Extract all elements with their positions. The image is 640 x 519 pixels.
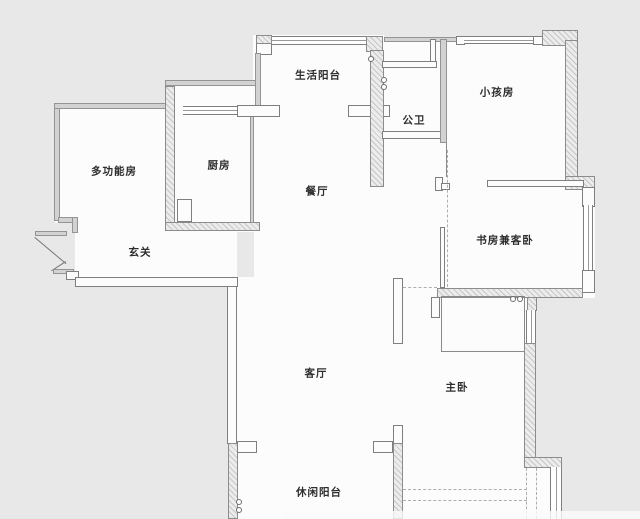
- dashed-line-master-door: [403, 287, 437, 288]
- wall-central-hatched: [370, 50, 384, 187]
- window-life-balcony-top: [271, 36, 367, 45]
- pier-life-balcony-corner-left: [256, 35, 272, 44]
- room-label-public-bath: 公卫: [403, 113, 426, 128]
- wall-study-west: [440, 227, 445, 288]
- wall-kidsroom-south: [487, 180, 584, 187]
- wardrobe-master-bedroom: [441, 296, 525, 352]
- room-label-living: 客厅: [305, 366, 328, 381]
- room-label-entry: 玄关: [129, 245, 152, 260]
- window-kitchen-north: [183, 106, 237, 115]
- window-life-balcony-west: [255, 53, 261, 106]
- wall-living-master-partition-upper: [393, 278, 403, 344]
- room-label-kids-room: 小孩房: [480, 85, 515, 100]
- entry-door-swing-line-1: [34, 237, 66, 264]
- dashed-line-master-south-1: [403, 489, 527, 490]
- pipe-symbol-master-1: [510, 296, 516, 302]
- kitchen-door-leaf: [177, 199, 192, 222]
- drain-symbol-balcony-top: [368, 56, 374, 62]
- wall-bath-top: [382, 61, 437, 68]
- room-label-life-balcony: 生活阳台: [295, 68, 341, 83]
- wall-multifunction-top: [54, 103, 167, 109]
- window-kidsroom-top: [464, 36, 534, 44]
- dashed-line-corridor: [447, 150, 448, 287]
- wall-kitchen-south: [165, 222, 260, 231]
- wall-entry-south: [75, 277, 238, 287]
- wall-leisure-balcony-east: [393, 443, 403, 519]
- floor-leisure-balcony: [228, 443, 403, 519]
- drain-symbol-leisure-2: [236, 507, 242, 513]
- window-study-east: [583, 205, 593, 271]
- wall-kitchen-west: [165, 86, 175, 230]
- entry-door-jamb-top: [35, 231, 67, 236]
- pier-study-east-bottom: [582, 270, 595, 293]
- drain-symbol-leisure-1: [236, 499, 242, 505]
- wall-master-east-stub: [527, 297, 537, 311]
- room-label-master-bedroom: 主卧: [446, 380, 469, 395]
- dashed-line-master-south-2: [403, 500, 527, 501]
- floor-plan: 生活阳台 公卫 小孩房 多功能房 厨房 餐厅 玄关 书房兼客卧 客厅 主卧 休闲…: [0, 0, 640, 519]
- pipe-symbol-bath-2: [381, 84, 387, 90]
- sill-life-balcony-left: [237, 105, 280, 117]
- pier-balcony-right: [373, 441, 393, 453]
- room-label-kitchen: 厨房: [208, 158, 231, 173]
- wall-living-west: [227, 286, 237, 444]
- floor-living: [227, 277, 403, 443]
- wall-bath-bottom: [382, 131, 445, 139]
- wall-stub-master-door: [431, 297, 440, 318]
- window-master-east: [526, 310, 536, 344]
- room-label-leisure-balcony: 休闲阳台: [296, 485, 342, 500]
- wall-master-east: [524, 343, 536, 468]
- watermark-bar: [283, 511, 640, 519]
- wall-multifunction-jog: [72, 217, 78, 233]
- pipe-symbol-bath-1: [381, 77, 387, 83]
- door-stop-kidsroom-2: [441, 183, 450, 190]
- wall-top-exterior-bath: [384, 37, 464, 42]
- pier-balcony-left: [237, 441, 257, 453]
- floor-bath-kidsroom: [370, 37, 578, 187]
- room-label-dining: 餐厅: [306, 184, 329, 199]
- pipe-symbol-master-2: [517, 296, 523, 302]
- wall-living-master-partition-lower: [393, 425, 403, 444]
- wall-kitchen-east: [250, 113, 254, 223]
- wall-bath-kidsroom-shared: [440, 39, 447, 143]
- wall-multifunction-left: [54, 103, 60, 221]
- room-label-multifunction: 多功能房: [91, 164, 137, 179]
- pier-study-east-top: [582, 187, 595, 207]
- wall-kidsroom-east: [565, 40, 578, 180]
- wall-north-exterior-kitchen: [165, 80, 257, 86]
- room-label-study-guest: 书房兼客卧: [476, 233, 534, 248]
